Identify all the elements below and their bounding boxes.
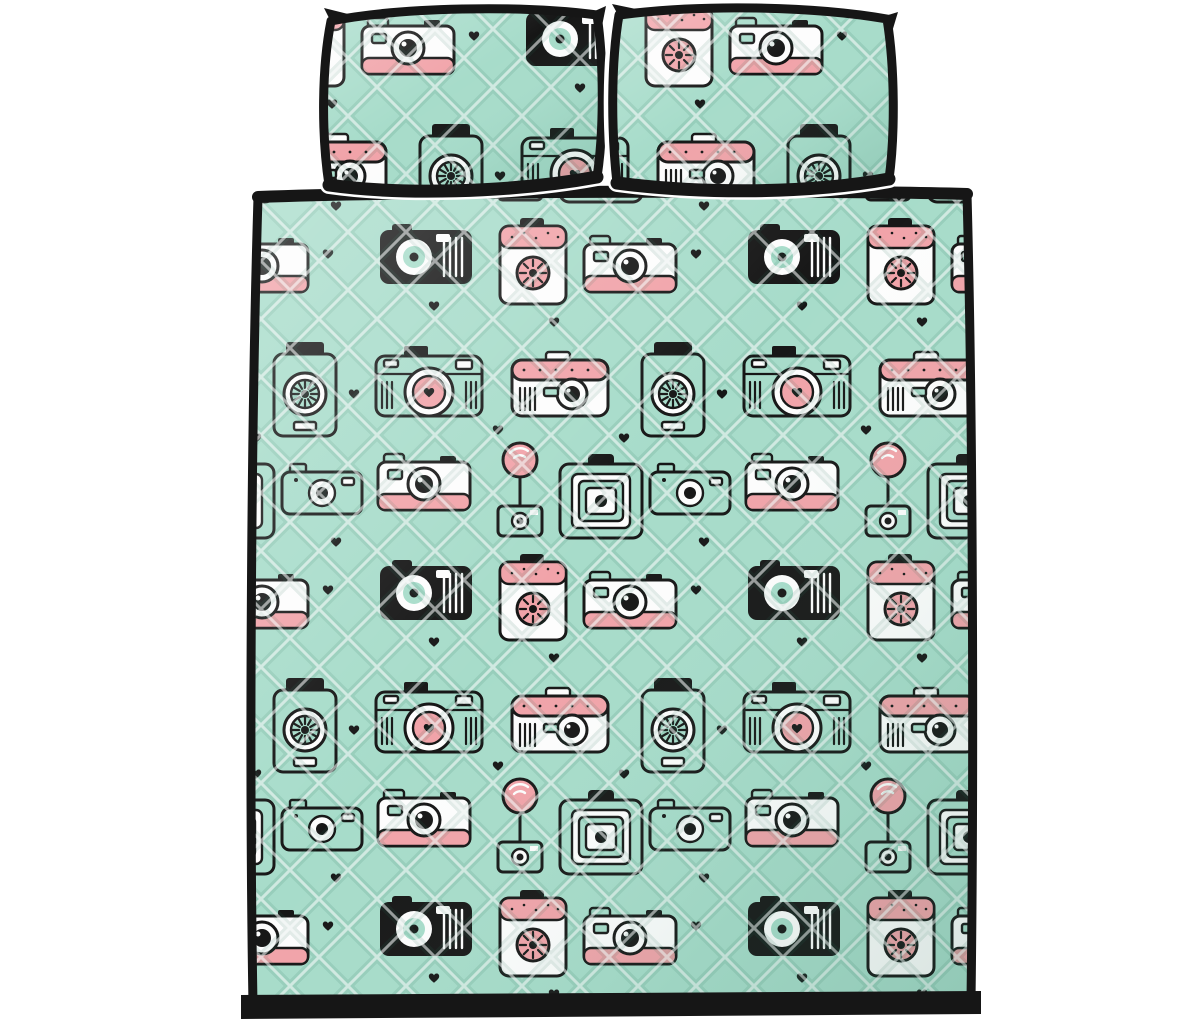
quilt: [241, 192, 981, 1019]
quilt-bottom-binding: [241, 991, 981, 1019]
pillow-sham-left: [324, 6, 606, 191]
pillow-right-sheen: [613, 8, 894, 191]
pillow-sham-right: [612, 4, 898, 191]
bed-set-photo: Cameras pattern quilt bed set — product …: [0, 0, 1200, 1024]
product-photo-canvas: Cameras pattern quilt bed set — product …: [0, 0, 1200, 1024]
pillow-left-sheen: [324, 9, 603, 191]
quilt-sheen: [251, 192, 973, 1007]
